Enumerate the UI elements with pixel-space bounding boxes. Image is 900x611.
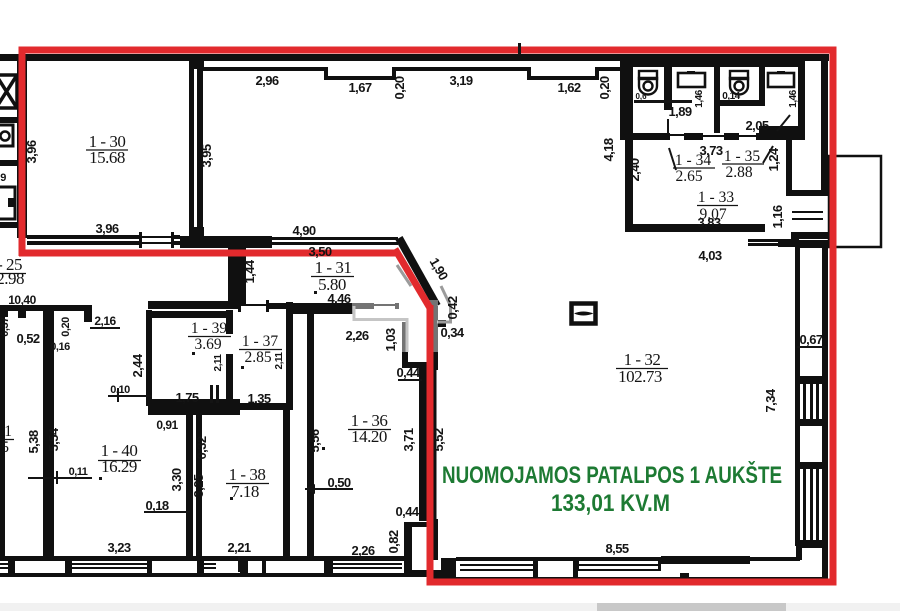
svg-text:3.69: 3.69 <box>194 336 221 353</box>
svg-text:3,95: 3,95 <box>199 144 214 167</box>
svg-text:0,37: 0,37 <box>0 317 11 337</box>
svg-text:0,20: 0,20 <box>597 76 612 99</box>
svg-text:0,34: 0,34 <box>441 325 465 340</box>
svg-text:5,56: 5,56 <box>307 429 322 452</box>
svg-text:1 - 39: 1 - 39 <box>191 320 227 337</box>
svg-text:0,16: 0,16 <box>50 341 70 353</box>
svg-text:7,34: 7,34 <box>763 388 778 412</box>
svg-text:2,44: 2,44 <box>130 353 145 377</box>
svg-text:8,55: 8,55 <box>606 541 629 556</box>
svg-text:0,52: 0,52 <box>17 331 40 346</box>
svg-text:0,44: 0,44 <box>397 365 421 380</box>
svg-text:1,03: 1,03 <box>383 328 398 351</box>
svg-text:2,40: 2,40 <box>627 158 642 181</box>
svg-text:2,11: 2,11 <box>213 354 224 372</box>
svg-text:0,82: 0,82 <box>386 530 401 553</box>
svg-text:0,10: 0,10 <box>110 384 130 396</box>
svg-text:0,42: 0,42 <box>445 296 460 319</box>
svg-text:3,96: 3,96 <box>24 140 39 163</box>
svg-text:0,20: 0,20 <box>392 76 407 99</box>
svg-text:1,89: 1,89 <box>669 104 692 119</box>
svg-text:0,14: 0,14 <box>722 91 740 102</box>
svg-text:1,75: 1,75 <box>176 390 199 405</box>
svg-text:2.85: 2.85 <box>244 349 271 366</box>
svg-text:2.98: 2.98 <box>0 269 24 288</box>
svg-text:5: 5 <box>1 439 9 456</box>
svg-text:0,44: 0,44 <box>396 504 420 519</box>
svg-text:2,11: 2,11 <box>274 352 285 370</box>
svg-text:3,96: 3,96 <box>96 221 119 236</box>
svg-text:0,20: 0,20 <box>60 317 72 337</box>
svg-text:3,30: 3,30 <box>169 468 184 491</box>
svg-text:14.20: 14.20 <box>351 427 387 446</box>
svg-text:0,91: 0,91 <box>156 418 178 432</box>
svg-text:- 1: - 1 <box>0 423 12 440</box>
svg-text:5,38: 5,38 <box>26 430 41 453</box>
svg-text:102.73: 102.73 <box>618 367 662 386</box>
svg-text:2,26: 2,26 <box>346 328 369 343</box>
svg-text:3,25: 3,25 <box>191 474 206 497</box>
svg-text:2,96: 2,96 <box>256 73 279 88</box>
svg-text:1,35: 1,35 <box>248 391 271 406</box>
svg-text:2,26: 2,26 <box>352 543 375 558</box>
svg-text:3,71: 3,71 <box>401 428 416 451</box>
svg-text:2,21: 2,21 <box>228 540 251 555</box>
svg-text:3,23: 3,23 <box>108 540 131 555</box>
svg-text:10,40: 10,40 <box>8 293 36 307</box>
svg-text:3,50: 3,50 <box>309 244 332 259</box>
svg-text:2,16: 2,16 <box>94 314 116 328</box>
svg-text:0,11: 0,11 <box>69 466 88 478</box>
svg-text:2,05: 2,05 <box>746 118 769 133</box>
svg-text:5,52: 5,52 <box>431 428 446 451</box>
svg-text:3,73: 3,73 <box>700 143 723 158</box>
svg-text:3,83: 3,83 <box>698 215 721 230</box>
svg-text:15.68: 15.68 <box>89 148 125 167</box>
svg-text:9: 9 <box>0 172 6 184</box>
svg-text:NUOMOJAMOS PATALPOS 1 AUKŠTE: NUOMOJAMOS PATALPOS 1 AUKŠTE <box>442 461 782 489</box>
svg-text:1,67: 1,67 <box>349 80 372 95</box>
svg-text:1,62: 1,62 <box>558 80 581 95</box>
svg-text:0,32: 0,32 <box>194 436 209 459</box>
svg-text:5,54: 5,54 <box>46 427 61 451</box>
svg-text:1,24: 1,24 <box>766 147 781 171</box>
svg-text:1,44: 1,44 <box>242 259 257 283</box>
svg-text:0,18: 0,18 <box>146 498 169 513</box>
svg-text:2.88: 2.88 <box>725 164 752 181</box>
svg-text:1 - 37: 1 - 37 <box>242 333 278 350</box>
svg-text:2.65: 2.65 <box>675 168 702 185</box>
svg-text:1,46: 1,46 <box>694 89 705 107</box>
svg-text:133,01 KV.M: 133,01 KV.M <box>551 490 670 517</box>
svg-text:0,67: 0,67 <box>800 332 823 347</box>
svg-text:4,18: 4,18 <box>601 138 616 161</box>
svg-text:4,03: 4,03 <box>699 248 722 263</box>
svg-text:1 - 33: 1 - 33 <box>698 189 734 206</box>
svg-text:4,90: 4,90 <box>293 223 316 238</box>
svg-text:4,46: 4,46 <box>328 291 351 306</box>
svg-text:1,46: 1,46 <box>788 89 799 107</box>
svg-text:0,50: 0,50 <box>328 475 351 490</box>
svg-text:1 - 35: 1 - 35 <box>724 148 760 165</box>
svg-text:0,6: 0,6 <box>635 92 647 101</box>
svg-text:7.18: 7.18 <box>231 482 259 501</box>
svg-text:16.29: 16.29 <box>101 457 137 476</box>
svg-text:1,16: 1,16 <box>770 205 785 228</box>
svg-text:3,19: 3,19 <box>450 73 473 88</box>
